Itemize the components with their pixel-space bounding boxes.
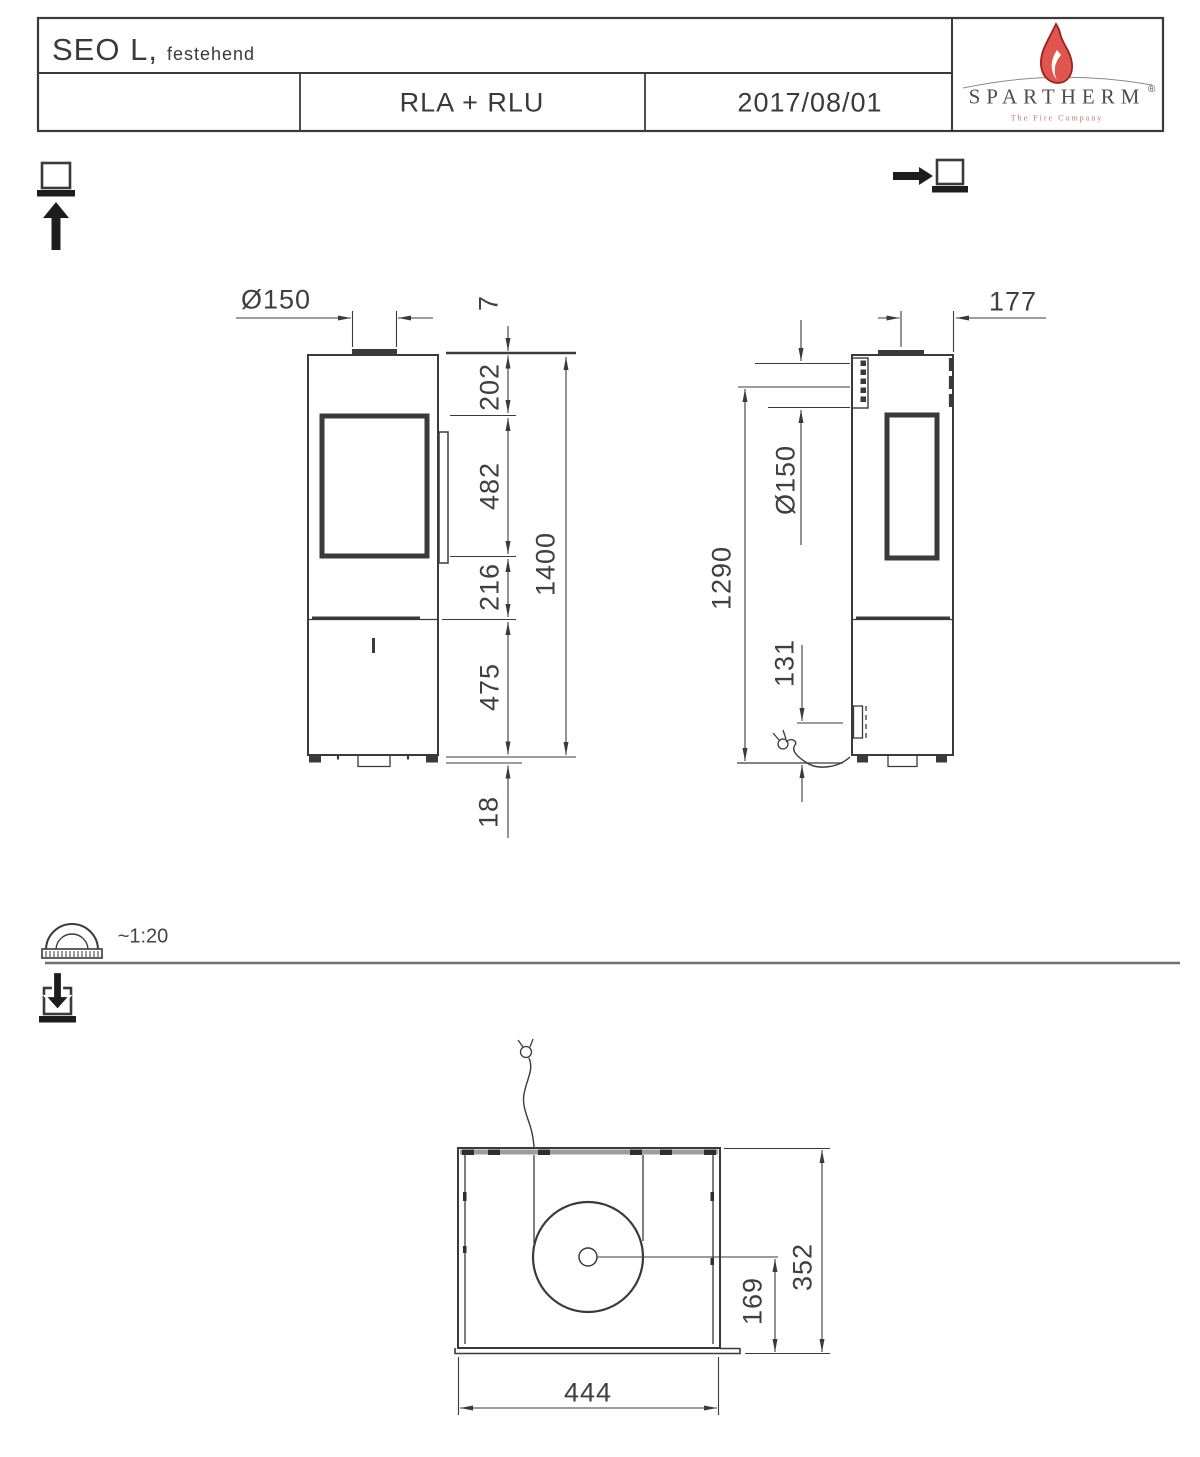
air-system-cell: RLA + RLU [400, 88, 545, 119]
dim-front-window-height: 482 [475, 462, 506, 510]
product-title: SEO L,festehend [52, 32, 255, 68]
dim-side-rear-air-diameter: Ø150 [771, 445, 802, 515]
front-view-marker-icon [37, 163, 75, 250]
front-view-drawing [308, 349, 448, 767]
dim-front-window-to-joint: 216 [475, 563, 506, 611]
flame-logo-icon [963, 24, 1152, 88]
brand-registered-mark: ® [1148, 84, 1155, 95]
dim-top-width: 444 [564, 1378, 612, 1409]
technical-drawing-page: SEO L,festehend RLA + RLU 2017/08/01 SPA… [0, 0, 1200, 1457]
front-view-dimension-lines [236, 311, 576, 838]
product-variant-note: festehend [167, 44, 255, 64]
dim-top-flue-offset: 169 [738, 1277, 769, 1325]
top-view-dimension-lines [459, 1149, 831, 1416]
dim-front-flue-diameter: Ø150 [241, 285, 311, 316]
product-name: SEO L, [52, 32, 158, 67]
side-view-drawing [737, 350, 953, 767]
dim-side-flue-to-front: 177 [989, 287, 1037, 318]
side-view-marker-icon [893, 160, 968, 193]
scale-protractor-icon [42, 924, 102, 958]
dim-front-base-height: 475 [475, 663, 506, 711]
dim-top-depth: 352 [788, 1243, 819, 1291]
dim-front-total-height: 1400 [531, 532, 562, 596]
drawing-canvas [0, 0, 1200, 1457]
dim-front-collar: 7 [474, 295, 505, 311]
dim-front-floor-gap: 18 [474, 796, 505, 828]
dim-front-top-to-window: 202 [475, 363, 506, 411]
dim-side-rear-air-height: 1290 [707, 546, 738, 610]
top-view-drawing [455, 1039, 778, 1354]
date-cell: 2017/08/01 [737, 88, 882, 119]
top-view-marker-icon [39, 972, 76, 1023]
brand-name: SPARTHERM [969, 85, 1146, 110]
dim-side-cable-height: 131 [770, 639, 801, 687]
scale-label: ~1:20 [118, 926, 169, 949]
brand-tagline: The Fire Company [1011, 114, 1103, 123]
